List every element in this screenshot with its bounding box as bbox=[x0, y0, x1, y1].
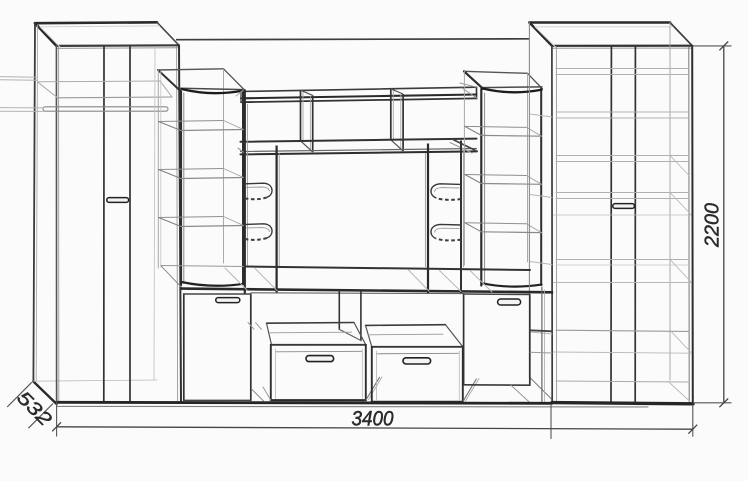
svg-text:2200: 2200 bbox=[702, 203, 724, 248]
svg-text:532: 532 bbox=[12, 387, 56, 431]
svg-text:3400: 3400 bbox=[352, 407, 394, 430]
